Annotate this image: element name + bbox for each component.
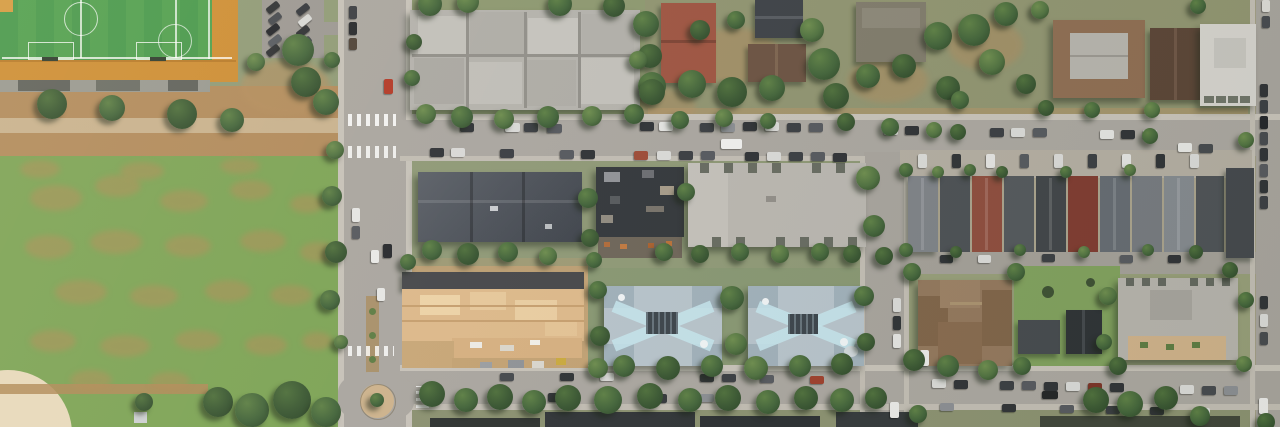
tree — [978, 360, 998, 380]
tree — [1031, 1, 1049, 19]
tree — [589, 281, 607, 299]
roof-vent — [490, 206, 498, 211]
tree — [235, 393, 269, 427]
tree — [370, 393, 384, 407]
tree — [691, 245, 709, 263]
tree — [808, 48, 840, 80]
roof-seam — [661, 40, 716, 43]
roof-section — [418, 16, 466, 56]
tree — [326, 141, 344, 159]
roof-notch — [1126, 278, 1134, 286]
tree — [863, 215, 885, 237]
roof-unit — [604, 172, 620, 182]
tree — [99, 95, 125, 121]
tree — [494, 109, 514, 129]
car — [451, 148, 465, 157]
roof-edge-detail — [1228, 96, 1238, 103]
tree — [881, 118, 899, 136]
roof-vent — [545, 224, 552, 229]
tree — [539, 247, 557, 265]
roof-edge-detail — [1204, 96, 1214, 103]
car — [383, 244, 392, 258]
tree — [909, 405, 927, 423]
car — [893, 316, 901, 330]
car — [349, 6, 357, 19]
planter — [1166, 344, 1174, 350]
roof-section — [688, 163, 728, 247]
tree — [457, 243, 479, 265]
car — [1260, 180, 1268, 193]
solar-grid — [646, 312, 678, 334]
townhouse-roof — [1132, 176, 1162, 252]
car — [1000, 381, 1014, 390]
tree — [837, 113, 855, 131]
townhouse-end-building — [1226, 168, 1254, 258]
car — [1260, 148, 1268, 161]
patio-item — [648, 243, 654, 248]
track-bottom-strip — [0, 60, 238, 82]
tree — [856, 166, 880, 190]
tree — [1222, 262, 1238, 278]
roof-ridge — [921, 178, 924, 250]
car — [1011, 128, 1025, 137]
roof-section — [468, 62, 522, 104]
satellite-map-canvas[interactable] — [0, 0, 1280, 427]
roof-vent — [766, 196, 776, 202]
car — [1260, 84, 1268, 97]
car — [1224, 386, 1238, 395]
tree — [588, 358, 608, 378]
tree — [950, 246, 962, 258]
tree — [624, 104, 644, 124]
car — [700, 123, 714, 132]
car — [1020, 154, 1029, 168]
tree — [1257, 413, 1275, 427]
tree — [865, 387, 887, 409]
car — [893, 298, 901, 312]
tree — [1109, 357, 1127, 375]
dry-grass-patch — [55, 280, 107, 304]
dry-grass-patch — [240, 230, 286, 252]
car — [371, 250, 379, 263]
tree — [1038, 100, 1054, 116]
dry-grass-patch — [160, 190, 208, 212]
construction-dark-section — [402, 272, 584, 289]
field-goal-line — [208, 0, 210, 59]
dry-grass-patch — [20, 160, 60, 178]
dry-grass-patch — [30, 330, 76, 352]
car — [500, 149, 514, 158]
car — [893, 334, 901, 348]
rooftop-strip — [836, 412, 918, 427]
roof-section — [862, 8, 920, 28]
car — [1044, 382, 1058, 391]
tree — [581, 229, 599, 247]
tree — [590, 326, 610, 346]
field-goal-2 — [150, 57, 166, 61]
roof-notch — [836, 163, 845, 173]
tree — [633, 11, 659, 37]
car — [940, 403, 954, 411]
roof-seam — [578, 12, 581, 108]
car — [1088, 154, 1097, 168]
roof-section — [582, 14, 634, 56]
dry-grass-patch — [220, 158, 260, 174]
roof-seam — [402, 320, 584, 322]
roof-section — [526, 60, 576, 106]
tree — [979, 49, 1005, 75]
tree — [273, 381, 311, 419]
tree — [958, 14, 990, 46]
tree — [1142, 128, 1158, 144]
car — [1120, 255, 1133, 263]
tree — [715, 385, 741, 411]
tree — [637, 383, 663, 409]
crosswalk — [348, 346, 394, 356]
roof-seam — [524, 12, 527, 108]
trampoline — [1086, 278, 1095, 287]
car — [978, 255, 991, 263]
tree — [720, 286, 744, 310]
car — [1259, 398, 1268, 414]
tree — [811, 243, 829, 261]
tree — [487, 384, 513, 410]
satellite-dish — [762, 298, 769, 305]
roof-unit — [642, 170, 654, 178]
roof-seam — [522, 172, 525, 242]
median-shrub — [369, 308, 376, 315]
tree — [1236, 356, 1252, 372]
track-inner-edge — [0, 60, 236, 62]
field-circle-1 — [64, 2, 98, 36]
median-shrub — [369, 356, 376, 363]
tree — [1084, 102, 1100, 118]
tree — [167, 99, 197, 129]
car — [932, 379, 946, 388]
tree — [1154, 386, 1178, 410]
tree — [404, 70, 420, 86]
townhouse-roof — [1004, 176, 1034, 252]
tree — [1096, 334, 1112, 350]
tree — [715, 109, 733, 127]
dry-grass-patch — [270, 285, 312, 305]
tree — [671, 111, 689, 129]
tree — [1142, 244, 1154, 256]
car — [1168, 255, 1181, 263]
tree — [678, 388, 702, 412]
tree — [555, 385, 581, 411]
car — [1110, 383, 1124, 392]
tree — [322, 186, 342, 206]
roof-notch — [1190, 278, 1198, 286]
tree — [655, 243, 673, 261]
car — [700, 394, 714, 402]
dry-grass-patch — [100, 335, 150, 357]
planter — [1192, 342, 1200, 348]
car — [905, 126, 919, 135]
car — [1190, 154, 1199, 168]
tree — [760, 113, 776, 129]
tree — [320, 290, 340, 310]
dry-grass-patch — [290, 195, 324, 213]
car — [1202, 386, 1216, 395]
tree — [856, 64, 880, 88]
patio-item — [604, 242, 610, 247]
tree — [1117, 391, 1143, 417]
townhouse-roof — [940, 176, 970, 252]
tree — [725, 333, 747, 355]
tree — [37, 89, 67, 119]
car — [701, 151, 715, 160]
dry-grass-patch — [130, 285, 178, 307]
roof-section — [414, 58, 464, 104]
tree — [717, 77, 747, 107]
car — [349, 22, 357, 35]
roof-unit — [610, 196, 620, 204]
tree — [498, 242, 518, 262]
tree — [586, 252, 602, 268]
dry-grass-patch — [230, 180, 272, 200]
rooftop-strip — [700, 416, 820, 427]
tree — [1099, 287, 1117, 305]
townhouse-roof — [1068, 176, 1098, 252]
construction-debris — [500, 345, 514, 351]
tree — [311, 397, 341, 427]
tree — [727, 11, 745, 29]
bleacher-dark-2 — [96, 80, 140, 91]
tree — [744, 356, 768, 380]
roof-unit — [646, 206, 664, 212]
dry-grass-patch — [165, 235, 211, 257]
car — [811, 152, 825, 161]
car — [1262, 16, 1270, 28]
dry-grass-patch — [175, 330, 221, 350]
tree — [334, 335, 348, 349]
car — [1100, 130, 1114, 139]
tree — [875, 247, 893, 265]
car — [1054, 154, 1063, 168]
tree — [594, 386, 622, 414]
tree — [639, 79, 665, 105]
tree — [422, 240, 442, 260]
tree — [203, 387, 233, 417]
roof-ridge — [985, 178, 988, 250]
plywood-sheet — [545, 320, 577, 336]
dry-grass-patch — [25, 235, 73, 259]
tree — [613, 355, 635, 377]
car — [1260, 164, 1268, 177]
car — [743, 122, 757, 131]
tree — [406, 34, 422, 50]
roof-wing — [982, 290, 1012, 346]
car — [767, 152, 781, 161]
car — [524, 123, 538, 132]
tree — [1190, 406, 1210, 426]
tree — [416, 104, 436, 124]
car — [1180, 385, 1194, 394]
tree — [951, 91, 969, 109]
dry-grass-patch — [90, 230, 142, 254]
dry-grass-patch — [205, 280, 251, 302]
car — [377, 288, 385, 301]
tree — [926, 122, 942, 138]
roof-ridge — [1113, 178, 1116, 250]
car — [1022, 381, 1036, 390]
tree — [899, 163, 913, 177]
car — [918, 154, 927, 168]
roof-ridge — [418, 200, 582, 203]
roof-seam — [470, 172, 473, 242]
car — [722, 374, 736, 382]
tree — [1189, 245, 1203, 259]
roof-notch — [748, 163, 757, 173]
car — [1262, 0, 1270, 12]
tree — [1013, 357, 1031, 375]
tree — [582, 106, 602, 126]
apartment-dark-roof — [418, 172, 582, 242]
tree — [830, 388, 854, 412]
car — [1260, 296, 1268, 309]
car — [1260, 332, 1268, 345]
field-corner-pad — [0, 0, 13, 12]
tree — [756, 390, 780, 414]
car — [634, 151, 648, 160]
bleacher-dark-1 — [18, 80, 70, 91]
street-north-south-right — [1256, 0, 1280, 427]
rooftop-strip — [545, 412, 695, 427]
tree — [400, 254, 416, 270]
car — [721, 139, 742, 149]
tree — [1060, 166, 1072, 178]
car — [990, 128, 1004, 137]
roof-notch — [1222, 278, 1230, 286]
tree — [690, 20, 710, 40]
car — [787, 123, 801, 132]
tree — [903, 349, 925, 371]
construction-debris — [530, 340, 540, 345]
tree — [247, 53, 265, 71]
tree — [1238, 292, 1254, 308]
roof-seam — [466, 12, 469, 108]
car — [1156, 154, 1165, 168]
tree — [135, 393, 153, 411]
solar-grid — [788, 314, 818, 334]
roof-section — [1214, 38, 1246, 68]
roof-notch — [700, 163, 709, 173]
satellite-dish — [840, 338, 848, 346]
car — [679, 151, 693, 160]
tree — [831, 353, 853, 375]
tree — [857, 333, 875, 351]
tree — [1007, 263, 1025, 281]
dry-grass-patch — [150, 372, 190, 390]
roof-notch — [1206, 278, 1214, 286]
tree — [1078, 246, 1090, 258]
dry-grass-patch — [245, 335, 287, 355]
tree — [892, 54, 916, 78]
roof-seam — [1070, 55, 1128, 57]
car — [1178, 143, 1192, 152]
roof-notch — [712, 237, 721, 247]
car — [349, 38, 357, 50]
car — [657, 151, 671, 160]
car — [890, 402, 899, 418]
car — [560, 150, 574, 159]
tree — [677, 183, 695, 201]
bleacher-dark-3 — [168, 80, 198, 91]
roof-section — [580, 58, 634, 104]
roof-ridge — [1174, 28, 1177, 100]
car — [384, 79, 393, 94]
car — [1060, 405, 1074, 413]
tree — [1016, 74, 1036, 94]
tree — [823, 83, 849, 109]
roof-section — [528, 18, 578, 56]
patio-item — [620, 244, 627, 249]
car — [1002, 404, 1016, 412]
tree — [282, 34, 314, 66]
park-shed — [134, 412, 147, 423]
satellite-dish — [700, 340, 708, 348]
tree — [794, 386, 818, 410]
tree — [903, 263, 921, 281]
roof-edge-detail — [1240, 96, 1250, 103]
construction-debris — [470, 342, 482, 348]
roof-edge-detail — [1216, 96, 1226, 103]
rooftop-strip — [430, 418, 540, 427]
roof-notch — [812, 163, 821, 173]
tree — [522, 390, 546, 414]
construction-yard — [402, 341, 454, 368]
tree — [629, 51, 647, 69]
roof-notch — [724, 163, 733, 173]
car — [1121, 130, 1135, 139]
car — [1260, 116, 1268, 129]
tree — [1124, 164, 1136, 176]
crosswalk — [348, 146, 396, 158]
car — [952, 154, 961, 168]
dry-grass-patch — [70, 370, 112, 390]
median-shrub — [369, 332, 376, 339]
tree — [1144, 102, 1160, 118]
tree — [996, 166, 1008, 178]
tree — [1083, 387, 1109, 413]
plywood-sheet — [515, 300, 557, 322]
car — [833, 153, 847, 162]
tree — [656, 356, 680, 380]
tree — [1014, 244, 1026, 256]
house-dark-gable — [755, 0, 803, 38]
roof-notch — [800, 237, 809, 247]
car — [810, 376, 824, 384]
car — [1260, 100, 1268, 113]
tree — [578, 188, 598, 208]
planter — [1140, 342, 1148, 348]
roof-ridge — [950, 302, 982, 305]
car — [430, 148, 444, 157]
car — [789, 152, 803, 161]
tree — [789, 355, 811, 377]
tree — [419, 381, 445, 407]
roof-ridge — [1049, 178, 1052, 250]
dirt-verge — [408, 258, 588, 272]
tree — [964, 164, 976, 176]
roof-ridge — [1177, 178, 1180, 250]
car — [352, 208, 360, 222]
car — [809, 123, 823, 132]
tree — [1238, 132, 1254, 148]
dry-grass-patch — [302, 332, 332, 350]
